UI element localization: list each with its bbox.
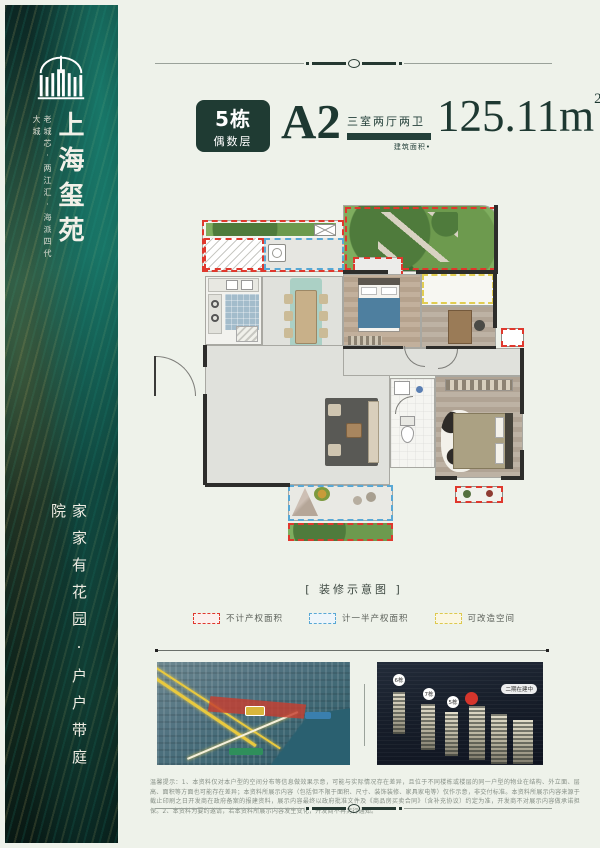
brand-slogan: 家家有花园·户户带庭院 [48,503,90,788]
legend-item-half-counted: 计一半产权面积 [309,612,409,624]
map-label-green [229,748,263,755]
bed-2-blanket [358,298,400,328]
legend-item-convertible: 可改造空间 [435,612,516,624]
bay-window-overlay [501,328,524,347]
tower-badge: 5栋 [447,696,459,708]
master-pillow [495,417,504,438]
bathroom-sink [394,381,410,395]
tower-badge: 6栋 [393,674,405,686]
toilet-tank [400,416,415,426]
bedroom-2-bench [348,336,382,345]
wall-segment [493,274,497,328]
stove-burner-1 [211,300,219,308]
tower-badge: 7栋 [423,688,435,700]
coffee-table [346,423,362,438]
map-label-site [245,706,265,716]
wall-segment [203,345,207,367]
bay-plant-red [486,490,493,497]
bottom-divider-ornament [155,804,552,813]
shower-head [416,386,423,393]
area-number: 125.11 [437,91,559,141]
entry-door-leaf [154,356,156,396]
bed-2-pillow [361,287,377,295]
master-headboard [505,413,513,469]
wall-segment [501,476,524,480]
dining-chair [284,294,293,304]
wall-segment [435,476,457,480]
dining-chair [284,311,293,321]
plan-caption: [ 装修示意图 ] [148,581,560,597]
tower-building [513,720,533,764]
hatched-overlay [204,238,264,270]
bed-2-headboard [358,278,400,285]
balcony-half-counted-overlay [288,485,393,521]
brand-name: 上海玺苑 [51,111,88,261]
balcony-planter-overlay [288,523,393,541]
stove-burner-2 [211,314,219,322]
wardrobe [445,379,513,391]
badge-building-no: 5栋 [215,103,251,132]
yellow-dashed-swatch [435,613,462,624]
night-render-photo: 6栋 7栋 5栋 二期在建中 [377,662,543,765]
laundry-half-counted-overlay [264,238,344,270]
master-bed [453,413,513,469]
dining-chair [319,294,328,304]
area-label: 建筑面积• [347,142,431,152]
kitchen-sink [226,280,238,290]
wall-segment [494,205,498,272]
tower-building [491,714,507,764]
area-superscript: 2 [594,91,600,107]
blue-dashed-swatch [309,613,336,624]
wall-segment [205,483,290,487]
arch-gate-logo-icon [32,51,90,103]
wall-segment [343,270,388,274]
legend-label: 可改造空间 [468,612,516,624]
header-accent-bar [347,133,431,140]
brand-tagline: 老城芯·两江汇·海派四代大城 [31,115,53,265]
photo-divider [364,684,365,746]
dining-chair [284,328,293,338]
bay-plant [463,490,471,498]
tower-building [445,712,458,756]
map-label-blue [305,712,331,719]
kitchen-sink-2 [241,280,253,290]
badge-floor-type: 偶数层 [214,133,253,149]
wall-segment [426,346,496,349]
master-pillow [495,443,504,464]
corridor [343,348,523,376]
top-divider-ornament [155,59,552,68]
dining-chair [319,311,328,321]
legend: 不计产权面积 计一半产权面积 可改造空间 [148,612,560,624]
bed-2-pillow [381,287,397,295]
poster-page: 老城芯·两江汇·海派四代大城 上海玺苑 家家有花园·户户带庭院 5栋 偶数层 A… [0,0,600,848]
wall-segment [203,394,207,485]
sofa [368,401,379,463]
room-configuration: 三室两厅两卫 [347,113,431,129]
legend-item-noncounted: 不计产权面积 [193,612,283,624]
legend-label: 计一半产权面积 [342,612,409,624]
wall-segment [520,348,524,414]
aerial-location-photo [157,662,350,765]
area-value: 125.11m2 [437,94,600,139]
photos-top-rule [157,650,547,651]
armchair [328,404,341,416]
building-badge: 5栋 偶数层 [196,100,270,152]
study-chair [474,320,485,331]
brand-sidebar: 老城芯·两江汇·海派四代大城 上海玺苑 家家有花园·户户带庭院 [5,5,118,843]
floor-plan [148,198,560,550]
red-dashed-swatch [193,613,220,624]
layout-summary: 三室两厅两卫 建筑面积• [347,113,431,152]
entry-door-arc [156,356,196,396]
tower-building [393,692,405,734]
legend-label: 不计产权面积 [226,612,283,624]
kitchen-mat [236,326,258,342]
armchair [328,444,341,456]
dining-table [295,290,317,344]
convertible-overlay [422,274,494,304]
wall-segment [343,346,403,349]
phase-status-tag: 二期在建中 [501,684,537,694]
featured-tower-badge [465,692,478,705]
study-desk [448,310,472,344]
kitchen-tile-floor [225,294,259,330]
tower-building [469,706,485,760]
dining-chair [319,328,328,338]
tower-building [421,704,435,750]
area-unit: m [559,91,594,141]
unit-code: A2 [281,97,341,146]
wall-segment [416,270,498,274]
